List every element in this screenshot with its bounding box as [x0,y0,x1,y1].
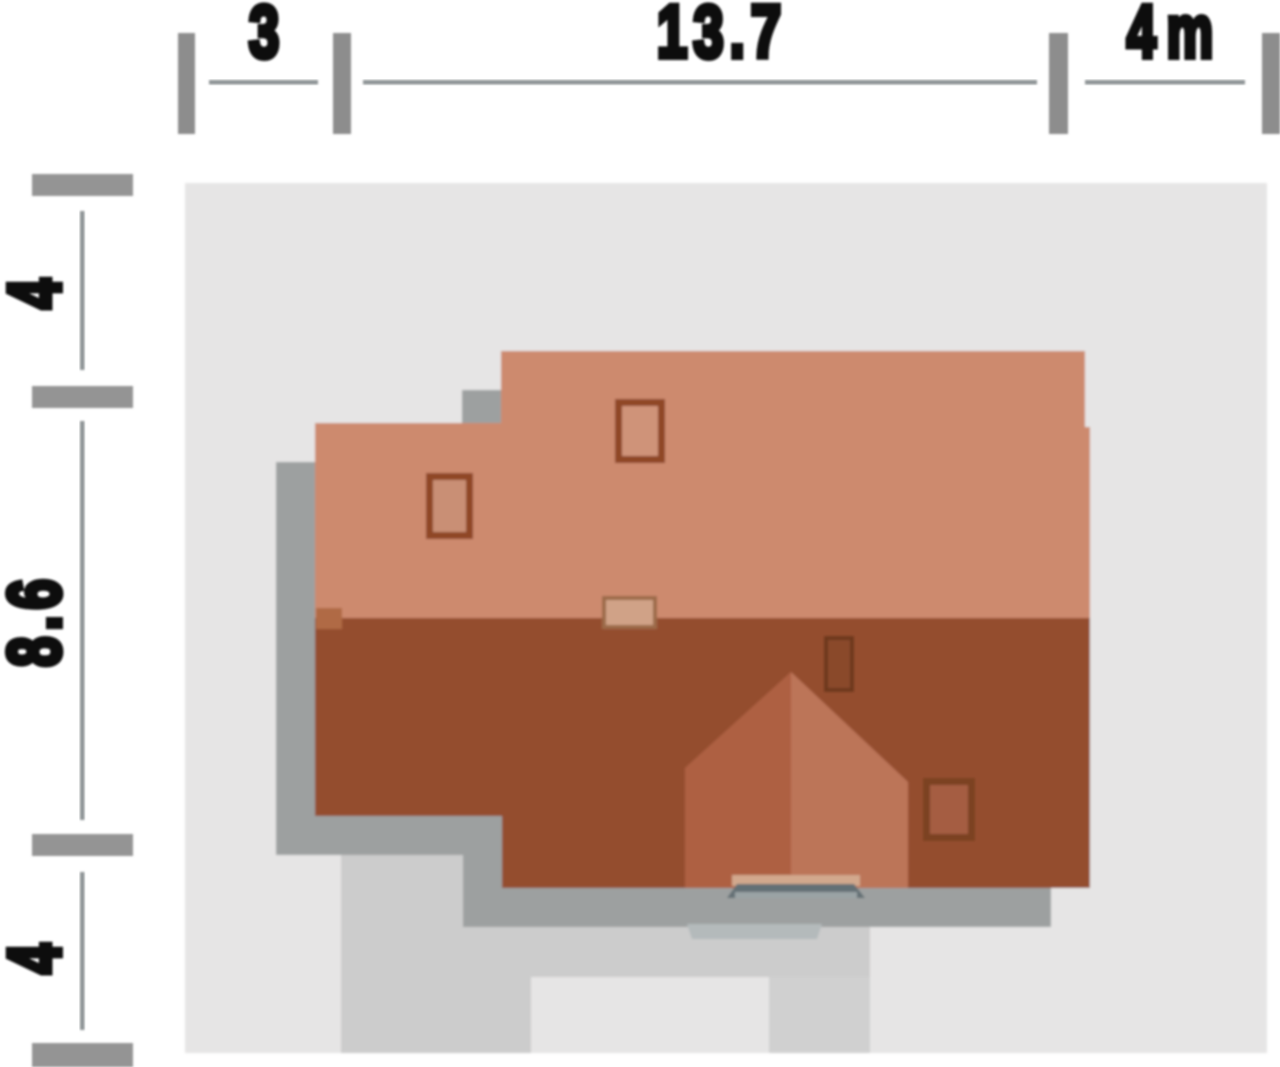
svg-text:8.6: 8.6 [0,573,76,667]
svg-text:4 m: 4 m [1127,0,1213,73]
svg-text:4: 4 [0,938,76,974]
svg-text:3: 3 [249,0,285,73]
svg-text:13.7: 13.7 [657,0,787,73]
svg-text:4: 4 [0,273,76,309]
